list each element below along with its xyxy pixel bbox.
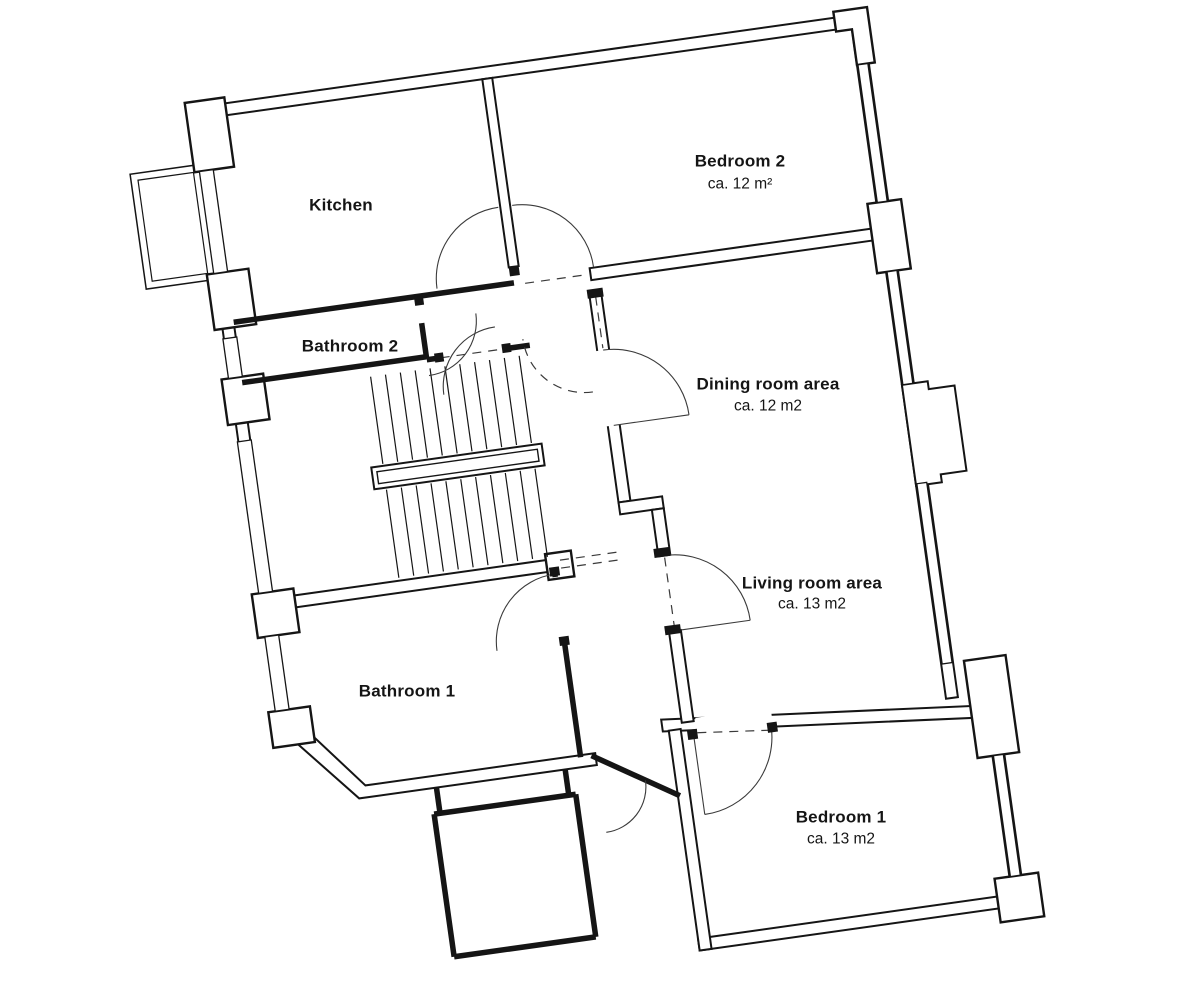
wall-piers <box>183 0 1045 1007</box>
bathroom2-door-arc <box>421 313 483 375</box>
living-area: ca. 13 m2 <box>778 594 846 613</box>
stair-handrail <box>371 444 544 490</box>
bedroom1-area: ca. 13 m2 <box>807 829 875 848</box>
kitchen-door-arc <box>427 207 508 288</box>
dining-area: ca. 12 m2 <box>734 396 802 415</box>
interior-walls <box>234 270 698 975</box>
bedroom2-label: Bedroom 2 <box>695 150 786 171</box>
floor-plan-svg <box>0 0 1200 1007</box>
kitchen-label: Kitchen <box>309 194 373 215</box>
bedroom1-label: Bedroom 1 <box>796 806 887 827</box>
bathroom1-label: Bathroom 1 <box>359 680 455 701</box>
storage-door-arc <box>600 780 652 832</box>
bathroom2-label: Bathroom 2 <box>302 335 398 356</box>
bedroom2-area: ca. 12 m² <box>708 174 773 193</box>
dining-label: Dining room area <box>696 373 839 394</box>
bedroom2-door-arc <box>512 195 593 276</box>
chimney-projection <box>902 378 968 486</box>
living-door-arc <box>664 545 750 631</box>
living-label: Living room area <box>742 572 882 593</box>
floor-plan: Kitchen Bedroom 2 ca. 12 m² Bathroom 2 D… <box>0 0 1200 1007</box>
exterior-walls <box>191 9 1025 1005</box>
bathroom1-door-arc <box>488 574 565 651</box>
staircase <box>359 354 558 579</box>
